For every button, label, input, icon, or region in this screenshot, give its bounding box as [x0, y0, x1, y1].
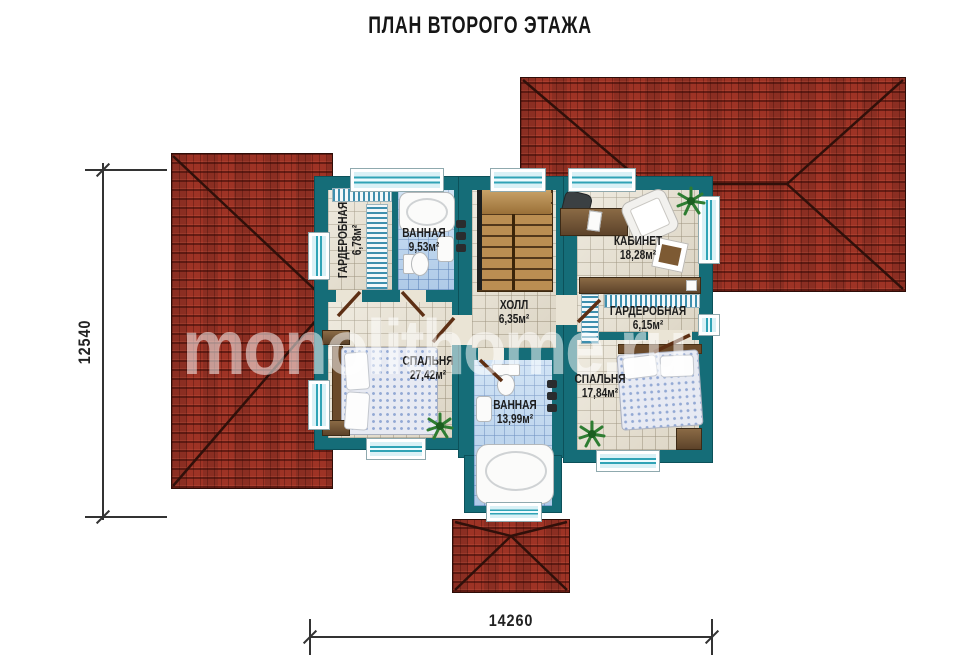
window-bottom-bedroom2	[596, 450, 660, 472]
label-wardrobe-1: ГАРДЕРОБНАЯ6,78м²	[336, 202, 364, 278]
bed1-pillow-bottom	[344, 391, 371, 431]
dim-left-ext-top	[85, 169, 167, 171]
label-bathroom-2: ВАННАЯ13,99м²	[493, 398, 536, 426]
plant-bedroom2	[578, 420, 606, 448]
label-study: КАБИНЕТ18,28м²	[614, 234, 662, 262]
window-top-study	[568, 168, 636, 192]
dim-bottom-line	[310, 636, 712, 638]
window-bottom-bedroom1	[366, 438, 426, 460]
plant-study	[676, 186, 706, 216]
dim-left-ext-bottom	[85, 516, 167, 518]
dim-bottom-value: 14260	[489, 611, 533, 631]
dim-left-value: 12540	[75, 320, 95, 364]
window-top-bathroom1	[350, 168, 444, 192]
dim-left-line	[102, 163, 104, 520]
label-bathroom-1: ВАННАЯ9,53м²	[402, 226, 445, 254]
window-top-hall	[490, 168, 546, 192]
window-right-small	[698, 314, 720, 336]
plant-bedroom1	[426, 412, 454, 440]
page-title: ПЛАН ВТОРОГО ЭТАЖА	[125, 12, 835, 40]
window-bottom-bathroom2	[486, 502, 542, 522]
watermark: monolithome.ru	[182, 302, 697, 393]
window-left-wardrobe1	[308, 232, 330, 280]
floor-plan-canvas: ПЛАН ВТОРОГО ЭТАЖА monolithome.ru	[0, 0, 960, 669]
